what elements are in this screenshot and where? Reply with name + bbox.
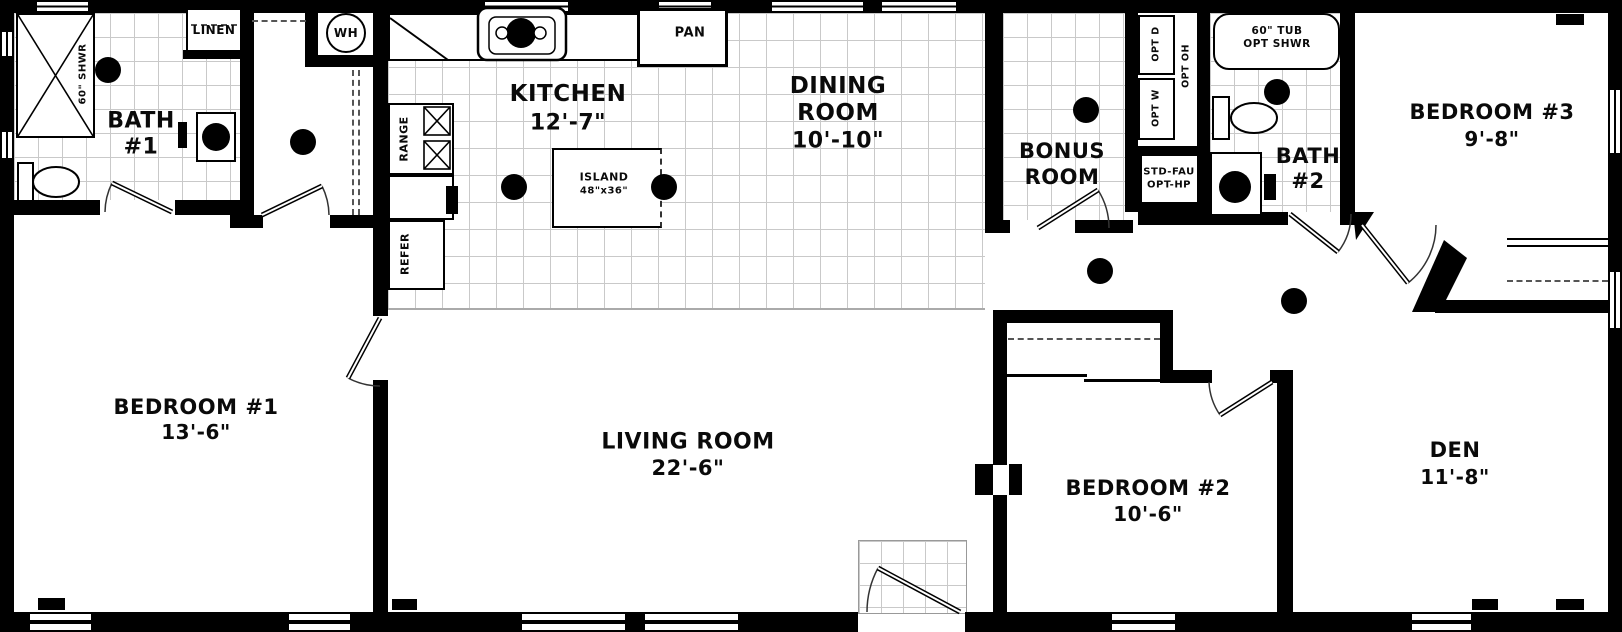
room-dim-dining: 10'-10": [792, 129, 884, 154]
opt-overhead-label: OPT OH: [1181, 44, 1192, 88]
room-label-bath1-num: #1: [124, 135, 159, 160]
furnace-label2: OPT-HP: [1147, 180, 1191, 191]
room-label-bath2: BATH: [1276, 144, 1341, 168]
range-label: RANGE: [398, 116, 411, 161]
kitchen-sink: [478, 8, 566, 60]
range-burners: [424, 107, 450, 169]
tub-label: 60" TUB: [1252, 25, 1303, 37]
floor-plan: BATH #1 KITCHEN 12'-7" DINING ROOM 10'-1…: [0, 0, 1622, 632]
room-label-bonus: BONUS: [1019, 139, 1105, 163]
shower-label: 60" SHWR: [78, 44, 89, 105]
island-label: ISLAND: [580, 171, 629, 184]
door-entry: [867, 568, 960, 612]
room-label-bedroom1: BEDROOM #1: [113, 395, 278, 419]
tub-label2: OPT SHWR: [1243, 38, 1310, 50]
room-label-den: DEN: [1430, 438, 1481, 462]
room-label-living: LIVING ROOM: [601, 430, 774, 455]
opt-dryer-label: OPT D: [1151, 26, 1162, 61]
door-bedroom1: [348, 318, 380, 386]
bath1-sink: [202, 123, 230, 151]
room-label-bath1: BATH: [107, 109, 175, 134]
room-label-bath2-num: #2: [1291, 169, 1324, 193]
pantry-label: PAN: [675, 26, 706, 41]
door-hall: [262, 186, 329, 215]
door-bath2: [1290, 214, 1351, 252]
room-dim-living: 22'-6": [652, 456, 725, 480]
opt-washer-label: OPT W: [1151, 89, 1162, 127]
door-bonus: [1038, 190, 1109, 228]
island-size-label: 48"x36": [580, 186, 628, 197]
door-bedroom2: [1209, 382, 1272, 415]
linen-label: LINEN: [193, 23, 236, 37]
room-dim-bedroom1: 13'-6": [161, 420, 231, 444]
room-dim-den: 11'-8": [1420, 465, 1490, 489]
room-dim-kitchen: 12'-7": [530, 111, 606, 136]
angled-wall: [1412, 240, 1467, 312]
bath2-sink: [1219, 171, 1251, 203]
water-heater-label: WH: [334, 26, 358, 40]
furnace-label: STD-FAU: [1143, 167, 1194, 178]
room-label-dining2: ROOM: [797, 100, 879, 126]
door-bath1: [105, 183, 172, 212]
room-dim-bedroom3: 9'-8": [1464, 127, 1519, 151]
refrigerator-label: REFER: [399, 233, 412, 275]
room-label-bedroom2: BEDROOM #2: [1065, 476, 1230, 500]
counter-corner: [390, 18, 448, 60]
room-label-bonus2: ROOM: [1025, 165, 1100, 189]
door-bedroom3: [1362, 225, 1436, 283]
room-label-bedroom3: BEDROOM #3: [1409, 100, 1574, 124]
room-label-kitchen: KITCHEN: [510, 81, 627, 107]
room-label-dining: DINING: [790, 73, 887, 99]
room-dim-bedroom2: 10'-6": [1113, 502, 1183, 526]
